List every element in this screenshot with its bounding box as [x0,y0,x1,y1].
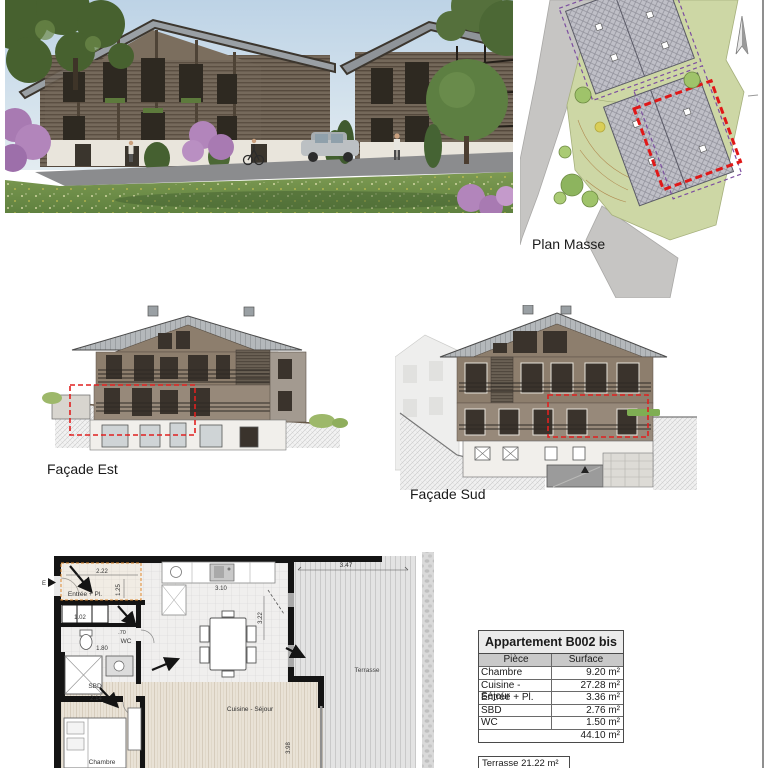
site-plan-caption: Plan Masse [532,236,605,252]
column-header-surface: Surface [552,654,623,666]
wardrobe [128,708,141,750]
washbasin [106,656,133,676]
entree-label: Entrée + Pl. [68,591,102,598]
room-name: WC [479,717,552,729]
room-name: Entrée + Pl. [479,692,552,704]
apartment-table-header: Pièce Surface [479,654,623,667]
table-body: Chambre9.20 m²Cuisine - Séjour27.28 m²En… [479,667,623,730]
facade-est-drawing [40,295,350,460]
room-surface: 1.50 m² [552,717,623,729]
chambre-label: Chambre [89,759,116,766]
dim-222: 2.22 [96,569,108,575]
wc-label: WC [121,638,132,645]
room-surface: 2.76 m² [552,705,623,717]
drawing-sheet: Plan Masse [0,0,768,768]
dim-322: 3.22 [258,612,264,624]
bush [309,414,335,428]
toilet [80,630,92,650]
table-row: SBD2.76 m² [479,705,623,718]
person-at-door [129,141,134,162]
column-header-piece: Pièce [479,654,552,666]
facade-sud-drawing [395,305,700,490]
table-total-row: 44.10 m² [479,730,623,742]
dim-70: .70 [118,630,126,636]
room-name: Cuisine - Séjour [479,680,552,692]
sbd-label: SBD [88,683,102,690]
tick-mark [748,95,758,96]
dim-398: 3.98 [286,742,292,754]
facade-est-caption: Façade Est [47,461,118,477]
cuisine-label: Cuisine - Séjour [227,706,274,713]
dim-347: 3.47 [340,562,353,569]
bush [332,418,348,428]
dim-214: 2.14 [90,696,102,702]
room-surface: 9.20 m² [552,667,623,679]
table-row: Cuisine - Séjour27.28 m² [479,680,623,693]
north-arrow [736,16,748,54]
room-name: Chambre [479,667,552,679]
table-row: Entrée + Pl.3.36 m² [479,692,623,705]
hedge-strip [627,409,660,416]
room-surface: 27.28 m² [552,680,623,692]
garage-door [547,465,603,487]
bush [42,392,62,404]
terrace-note-box: Terrasse 21.22 m² [478,756,570,768]
apartment-table: Appartement B002 bis Pièce Surface Chamb… [478,630,624,743]
hedge [424,124,442,168]
exterior-render [5,0,513,213]
terrasse-label: Terrasse [355,667,380,674]
apartment-table-title: Appartement B002 bis [479,631,623,654]
facade-est-building [52,306,306,450]
site-plan [520,0,765,298]
dim-180: 1.80 [96,646,108,652]
sheet-border-line [762,0,764,768]
dim-102: 1.02 [74,615,86,621]
dim-310: 3.10 [215,586,227,592]
facade-sud-caption: Façade Sud [410,486,486,502]
total-surface: 44.10 m² [479,730,623,742]
facade-sud-building [440,305,667,487]
floor-plan: 3.47 Terrasse [40,548,435,768]
terrain-right [653,417,697,490]
dim-125: 1.25 [116,584,122,596]
table-row: WC1.50 m² [479,717,623,730]
room-surface: 3.36 m² [552,692,623,704]
entry-mark: E [42,581,46,587]
room-name: SBD [479,705,552,717]
table-row: Chambre9.20 m² [479,667,623,680]
gravel-strip [422,552,434,768]
